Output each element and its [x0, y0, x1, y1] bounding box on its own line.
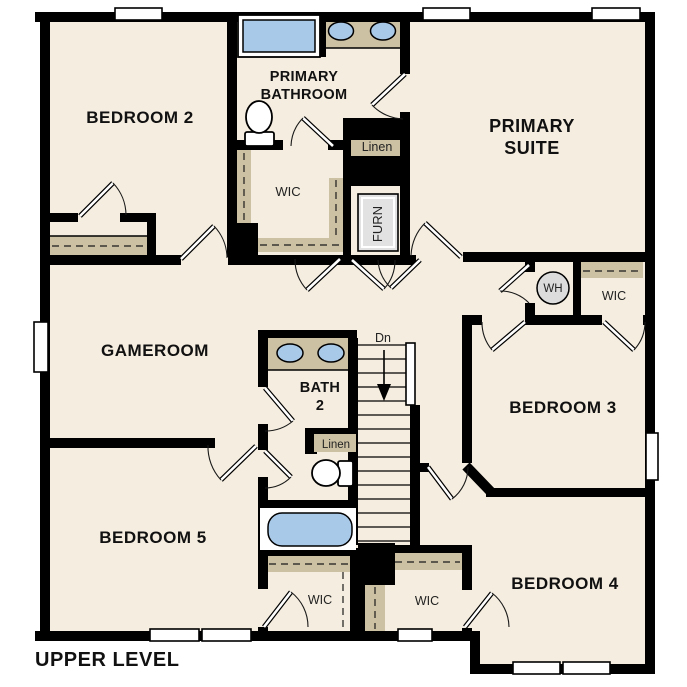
primary-bathtub	[238, 15, 320, 57]
bath2-toilet	[312, 460, 353, 486]
room-label-gameroom: GAMEROOM	[101, 341, 209, 360]
stair-railing	[406, 343, 415, 405]
bedroom5-window-left	[150, 629, 199, 641]
label-bedroom4-wic: WIC	[415, 594, 439, 608]
room-label-bedroom5: BEDROOM 5	[99, 528, 206, 547]
floor-plan-page: BEDROOM 2 PRIMARY BATHROOM PRIMARY SUITE…	[0, 0, 687, 687]
label-bedroom5-wic: WIC	[308, 593, 332, 607]
bedroom2-window	[115, 8, 162, 20]
label-furnace: FURN	[370, 206, 385, 242]
label-primary-wic: WIC	[275, 184, 300, 199]
room-label-bedroom3: BEDROOM 3	[509, 398, 616, 417]
room-label-bedroom4: BEDROOM 4	[511, 574, 619, 593]
label-bedroom3-wic: WIC	[602, 289, 626, 303]
label-water-heater: WH	[543, 283, 562, 295]
room-label-bedroom2: BEDROOM 2	[86, 108, 193, 127]
floor-plan-drawing: BEDROOM 2 PRIMARY BATHROOM PRIMARY SUITE…	[0, 0, 687, 687]
gameroom-window	[34, 322, 48, 372]
room-label-primary-suite-line1: PRIMARY	[489, 116, 575, 136]
room-label-bath2-line1: BATH	[300, 380, 340, 396]
label-linen-bath2: Linen	[322, 439, 350, 451]
label-linen-upper: Linen	[362, 140, 393, 154]
bedroom4-window-left	[513, 662, 560, 674]
label-stairs-down: Dn	[375, 331, 391, 345]
bath2-bathtub	[260, 508, 356, 550]
room-label-bath2-line2: 2	[316, 398, 324, 414]
bedroom3-window	[646, 433, 658, 480]
primary-suite-window-left	[423, 8, 470, 20]
wic-window	[398, 629, 432, 641]
primary-toilet	[245, 101, 274, 146]
room-label-primary-suite-line2: SUITE	[504, 138, 560, 158]
room-label-primary-bathroom-line2: BATHROOM	[261, 87, 348, 103]
bedroom4-window-right	[563, 662, 610, 674]
room-label-primary-bathroom-line1: PRIMARY	[270, 69, 338, 85]
primary-suite-window-right	[592, 8, 640, 20]
bedroom5-window-right	[202, 629, 251, 641]
plan-title: UPPER LEVEL	[35, 649, 179, 671]
